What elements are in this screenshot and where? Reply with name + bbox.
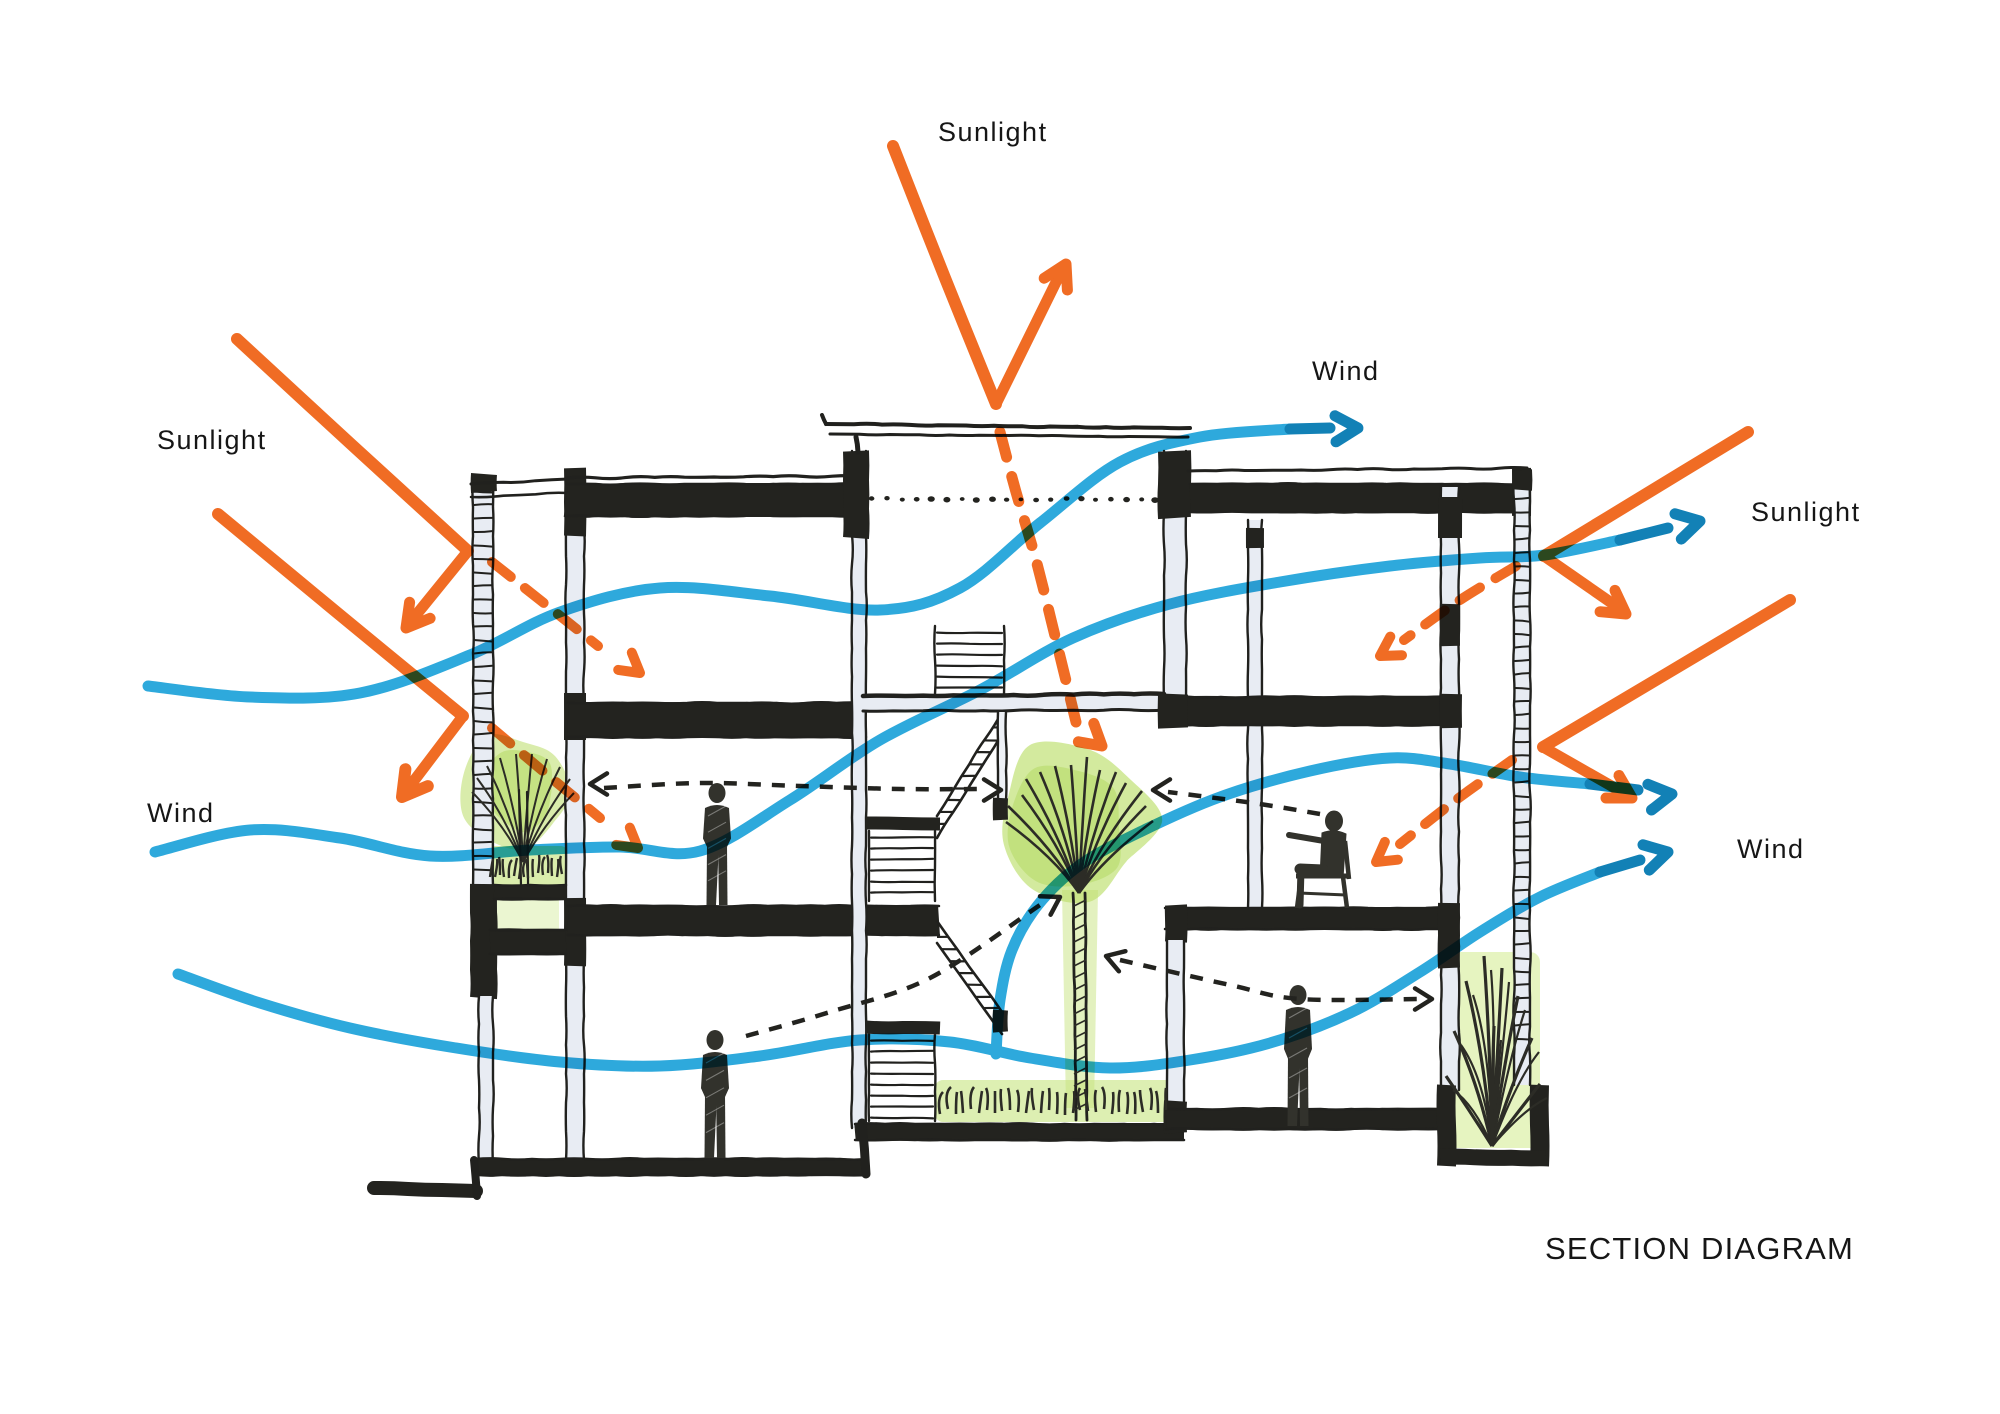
- svg-text:Wind: Wind: [147, 798, 215, 828]
- svg-text:Sunlight: Sunlight: [157, 425, 267, 455]
- svg-text:SECTION DIAGRAM: SECTION DIAGRAM: [1545, 1231, 1854, 1266]
- svg-text:Wind: Wind: [1737, 834, 1805, 864]
- svg-text:Sunlight: Sunlight: [938, 117, 1048, 147]
- svg-text:Wind: Wind: [1312, 356, 1380, 386]
- svg-text:Sunlight: Sunlight: [1751, 497, 1861, 527]
